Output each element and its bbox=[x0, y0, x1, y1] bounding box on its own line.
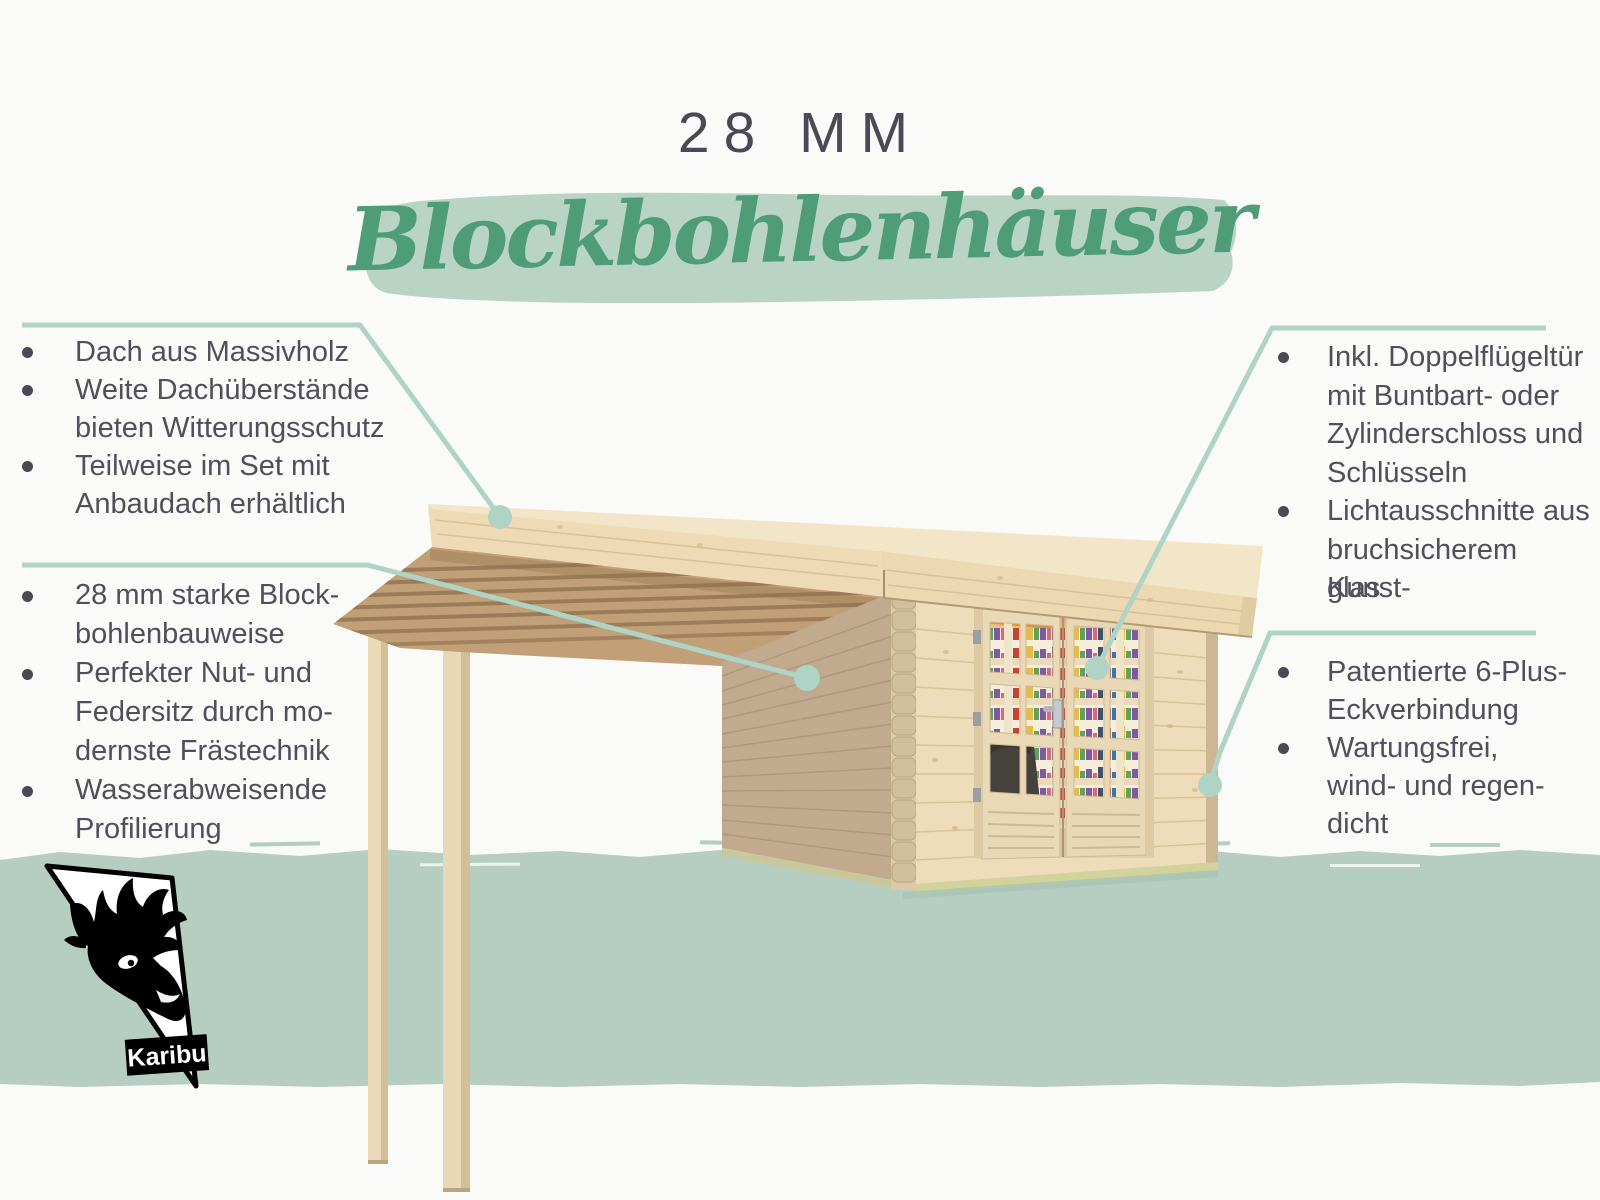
feature-block-corner: Patentierte 6-Plus- Eckverbindung Wartun… bbox=[1278, 653, 1567, 843]
callout-dot-roof bbox=[488, 505, 512, 529]
brand-text: Karibu bbox=[127, 1039, 208, 1072]
feature-text: wind- und regen- bbox=[1327, 767, 1567, 805]
feature-text: Weite Dachüberstände bbox=[75, 371, 384, 409]
canopy-post-left bbox=[368, 628, 388, 1164]
double-door bbox=[973, 599, 1154, 859]
feature-text: Anbaudach erhältlich bbox=[75, 485, 384, 523]
ground-band bbox=[0, 840, 1600, 1087]
feature-text: Perfekter Nut- und bbox=[75, 654, 339, 693]
callout-dot-wall bbox=[794, 665, 820, 691]
feature-text: dernste Frästechnik bbox=[75, 732, 339, 771]
bullet-icon bbox=[22, 591, 33, 602]
feature-text: Lichtausschnitte aus bbox=[1327, 492, 1600, 531]
bullet-icon bbox=[22, 385, 33, 396]
feature-block-wall: 28 mm starke Block- bohlenbauweise Perfe… bbox=[22, 576, 339, 849]
feature-text: Profilierung bbox=[75, 810, 339, 849]
callout-dot-door bbox=[1085, 656, 1109, 680]
feature-text: bieten Witterungsschutz bbox=[75, 409, 384, 447]
canopy-post-right bbox=[443, 606, 470, 1192]
feature-block-door: Inkl. Doppelflügeltür mit Buntbart- oder… bbox=[1278, 338, 1600, 608]
glass-reflection bbox=[982, 604, 1154, 859]
feature-text: Inkl. Doppelflügeltür bbox=[1327, 338, 1600, 377]
bullet-icon bbox=[22, 461, 33, 472]
feature-text: Dach aus Massivholz bbox=[75, 333, 384, 371]
feature-text: 28 mm starke Block- bbox=[75, 576, 339, 615]
bullet-icon bbox=[22, 669, 33, 680]
feature-text: Zylinderschloss und bbox=[1327, 415, 1600, 454]
callout-dot-corner bbox=[1198, 773, 1222, 797]
house-corner-joints bbox=[891, 585, 917, 890]
logo-wordmark: Karibu bbox=[125, 1034, 209, 1076]
page-title: 28 MM bbox=[0, 100, 1600, 166]
bullet-icon bbox=[1278, 743, 1289, 754]
bullet-icon bbox=[22, 347, 33, 358]
feature-text: bohlenbauweise bbox=[75, 615, 339, 654]
infographic-page: Karibu 28 MM Blockbohlenhäuser Dach aus … bbox=[0, 0, 1600, 1200]
feature-text: mit Buntbart- oder bbox=[1327, 377, 1600, 416]
feature-text: Wartungsfrei, bbox=[1327, 729, 1567, 767]
feature-text: dicht bbox=[1327, 805, 1567, 843]
feature-text: Eckverbindung bbox=[1327, 691, 1567, 729]
feature-text: Schlüsseln bbox=[1327, 454, 1600, 493]
feature-text: Federsitz durch mo- bbox=[75, 693, 339, 732]
feature-text: Teilweise im Set mit bbox=[75, 447, 384, 485]
bullet-icon bbox=[1278, 667, 1289, 678]
feature-text: Patentierte 6-Plus- bbox=[1327, 653, 1567, 691]
bullet-icon bbox=[1278, 352, 1289, 363]
bullet-icon bbox=[1278, 506, 1289, 517]
feature-text: Wasserabweisende bbox=[75, 771, 339, 810]
feature-block-roof: Dach aus Massivholz Weite Dachüberstände… bbox=[22, 333, 384, 523]
bullet-icon bbox=[22, 786, 33, 797]
feature-text: glas bbox=[1327, 569, 1600, 608]
